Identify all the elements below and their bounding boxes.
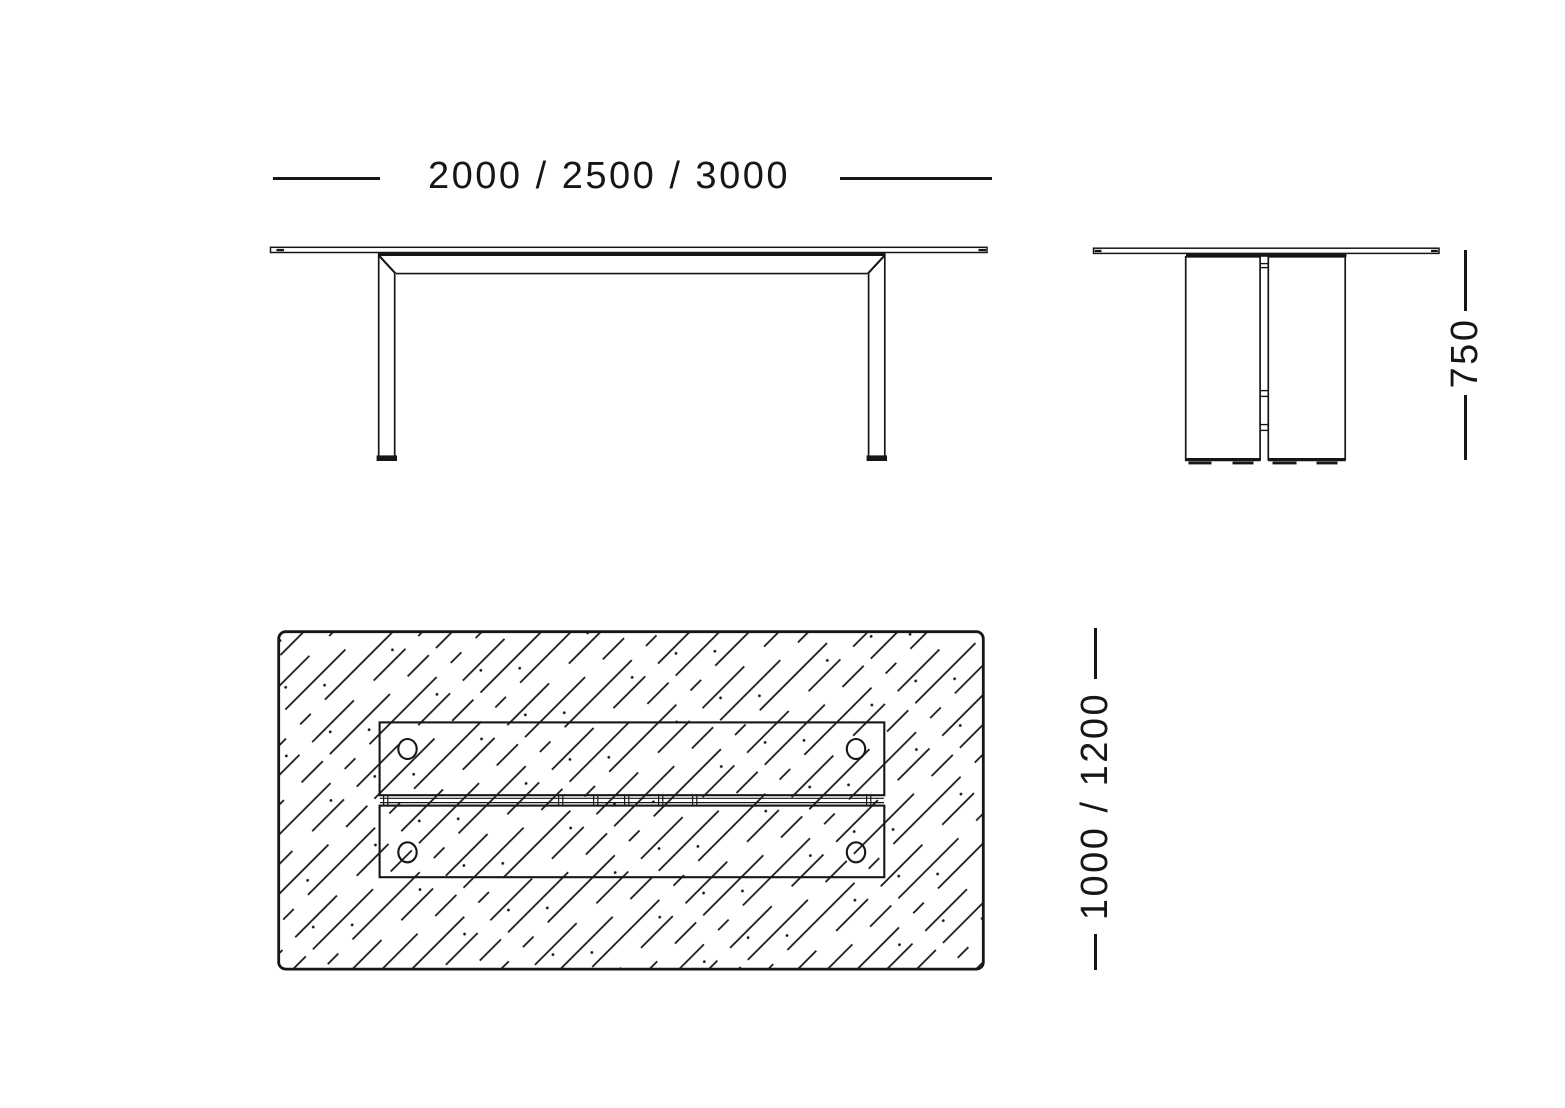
tabletop-edge-cap-left	[277, 249, 285, 251]
depth-dimension-line-bottom	[1094, 934, 1097, 970]
leg-panel-right-side	[1268, 257, 1345, 460]
tabletop-front	[271, 247, 988, 252]
tabletop-side-cap-left	[1095, 250, 1102, 252]
tabletop-edge-cap-right	[979, 249, 987, 251]
plan-view-drawing	[270, 623, 995, 978]
length-dimension-line-left	[273, 177, 380, 180]
tabletop-side-cap-right	[1431, 250, 1438, 252]
technical-drawing-sheet: 2000 / 2500 / 3000	[0, 0, 1565, 1108]
leg-right	[867, 253, 887, 461]
side-elevation-drawing	[1085, 238, 1450, 473]
tabletop-plan-outline	[279, 632, 984, 969]
height-dimension-line-bottom	[1464, 395, 1467, 460]
tabletop-side	[1094, 248, 1440, 253]
depth-dimension-label: 1000 / 1200	[1073, 656, 1117, 956]
front-elevation-drawing	[260, 238, 1005, 473]
panel-gap-connectors	[1260, 264, 1268, 431]
length-dimension-label: 2000 / 2500 / 3000	[374, 155, 844, 197]
length-dimension-line-right	[840, 177, 992, 180]
feet-pads	[1189, 462, 1338, 465]
frame-rail-top	[378, 253, 885, 256]
leg-left	[377, 253, 397, 461]
leg-panel-left-side	[1186, 257, 1260, 460]
